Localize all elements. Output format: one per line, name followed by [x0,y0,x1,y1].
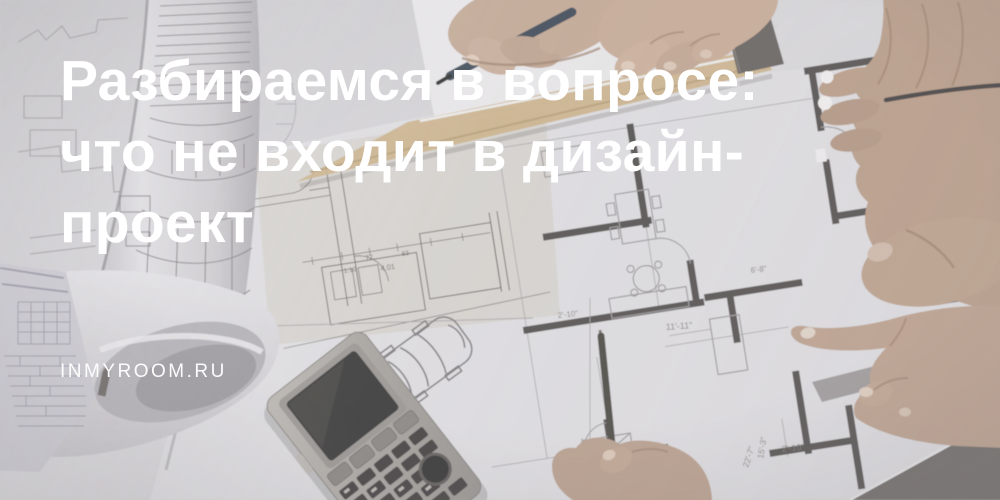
fingernail [821,71,834,84]
plan-label: 11'-11" [665,320,692,332]
title-line-1: Разбираемся в вопросе: [60,46,759,117]
fingernail [899,408,911,417]
title-line-2: что не входит в дизайн- [60,117,759,188]
site-watermark: INMYROOM.RU [60,361,227,383]
paper-highlight [815,148,827,162]
article-cover: 72 83 4.01 1.10 [0,0,1000,500]
fingernail [859,387,873,397]
fingernail [818,96,832,110]
title-line-3: проект [60,188,759,259]
article-title: Разбираемся в вопросе: что не входит в д… [60,46,759,259]
